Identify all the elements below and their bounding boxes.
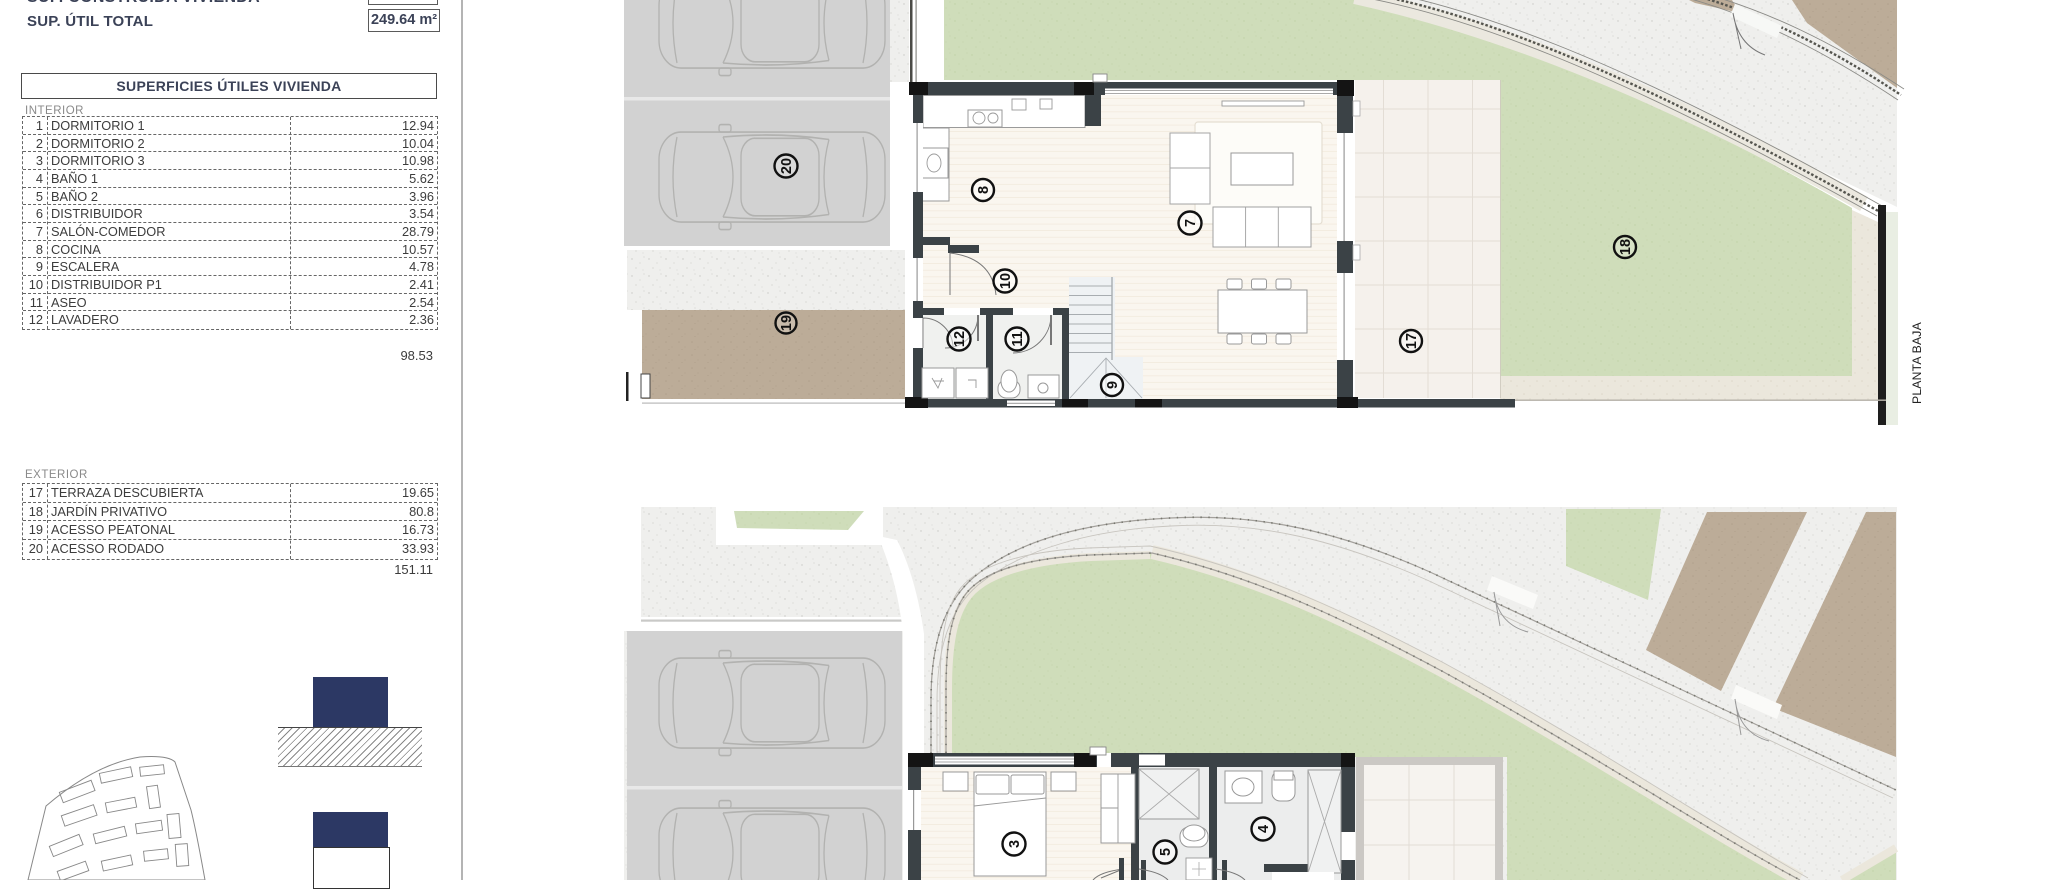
- svg-text:10: 10: [998, 273, 1014, 289]
- svg-text:7: 7: [1183, 219, 1199, 227]
- svg-text:20: 20: [779, 158, 795, 174]
- svg-text:PLANTA BAJA: PLANTA BAJA: [1910, 321, 1924, 404]
- svg-text:17: 17: [1404, 333, 1420, 349]
- svg-text:18: 18: [1618, 239, 1634, 255]
- svg-text:5: 5: [1158, 848, 1174, 856]
- svg-text:3: 3: [1007, 840, 1023, 848]
- svg-text:19: 19: [779, 315, 795, 331]
- svg-text:4: 4: [1256, 825, 1272, 833]
- svg-text:11: 11: [1010, 331, 1026, 346]
- svg-text:9: 9: [1105, 381, 1121, 389]
- svg-text:12: 12: [952, 331, 968, 347]
- svg-text:8: 8: [976, 186, 992, 194]
